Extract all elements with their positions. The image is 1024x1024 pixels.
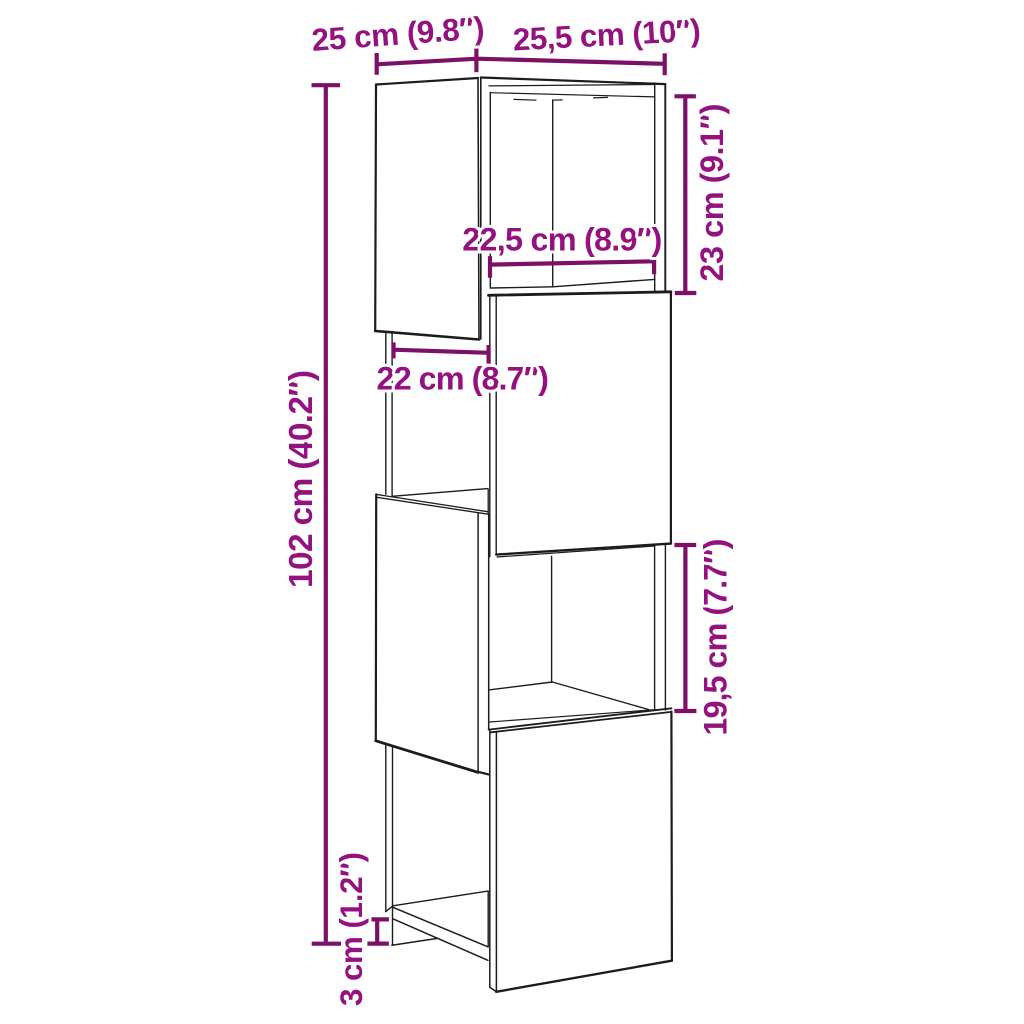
svg-text:3 cm (1.2″): 3 cm (1.2″) [333, 852, 369, 1006]
svg-text:102 cm (40.2″): 102 cm (40.2″) [283, 370, 320, 588]
svg-text:19,5 cm (7.7″): 19,5 cm (7.7″) [698, 539, 734, 736]
svg-text:23 cm (9.1″): 23 cm (9.1″) [694, 104, 730, 282]
svg-text:22 cm (8.7″): 22 cm (8.7″) [377, 361, 550, 397]
svg-text:22,5 cm (8.9″): 22,5 cm (8.9″) [462, 222, 662, 258]
